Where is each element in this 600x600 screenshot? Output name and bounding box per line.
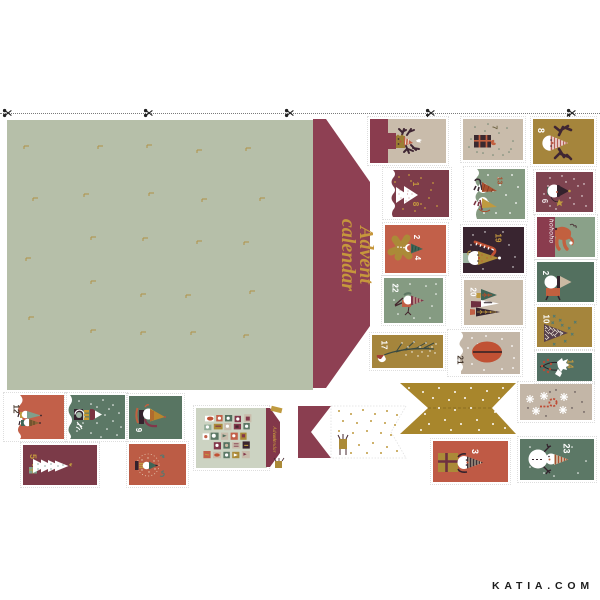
svg-text:calendar: calendar	[271, 433, 277, 453]
